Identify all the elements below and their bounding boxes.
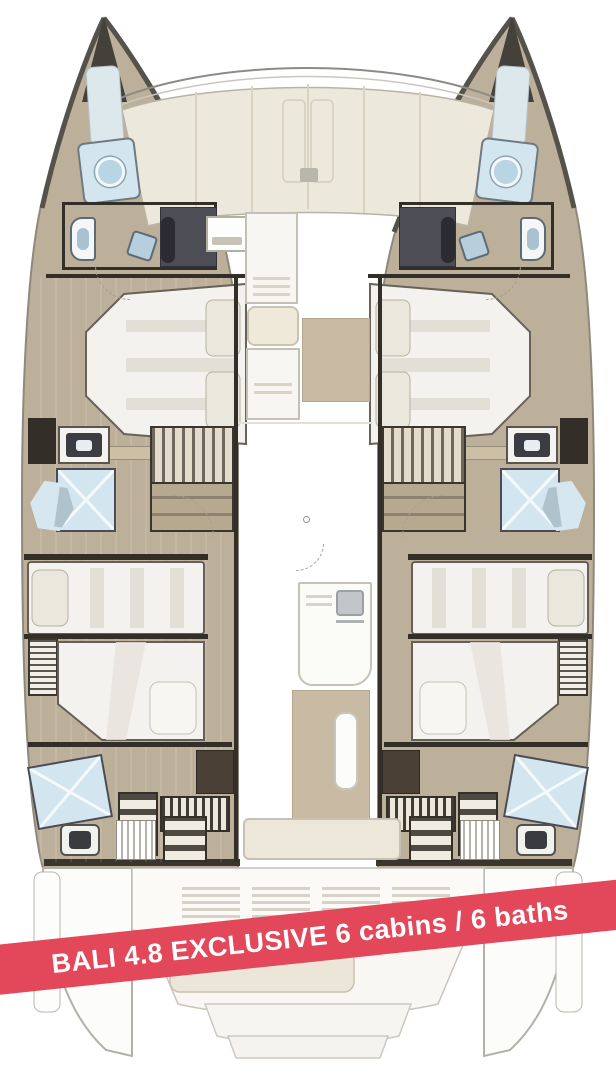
forward-cockpit-rug <box>302 318 370 402</box>
sink-grill-icon <box>254 378 292 394</box>
transom-vent <box>182 884 240 922</box>
saloon-table <box>334 712 358 790</box>
anchor-locker-slot <box>212 237 242 245</box>
grill-icon <box>253 272 290 296</box>
saloon-rug <box>292 690 370 822</box>
floor-plan-canvas: BALI 4.8 EXCLUSIVE 6 cabins / 6 baths <box>0 0 616 1080</box>
cockpit-sink-module <box>246 348 300 420</box>
galley-sink-icon <box>336 590 364 616</box>
saloon-front-line <box>238 422 372 424</box>
aft-cockpit-bench <box>243 818 401 860</box>
cockpit-galley-module <box>245 212 298 304</box>
door-swing-arc <box>268 515 324 571</box>
faucet-icon <box>336 620 364 623</box>
anchor-locker <box>206 216 248 252</box>
saloon-door-handle <box>303 516 310 523</box>
cockpit-seat <box>247 306 299 346</box>
galley-island <box>298 582 372 686</box>
stove-icon <box>306 592 332 606</box>
